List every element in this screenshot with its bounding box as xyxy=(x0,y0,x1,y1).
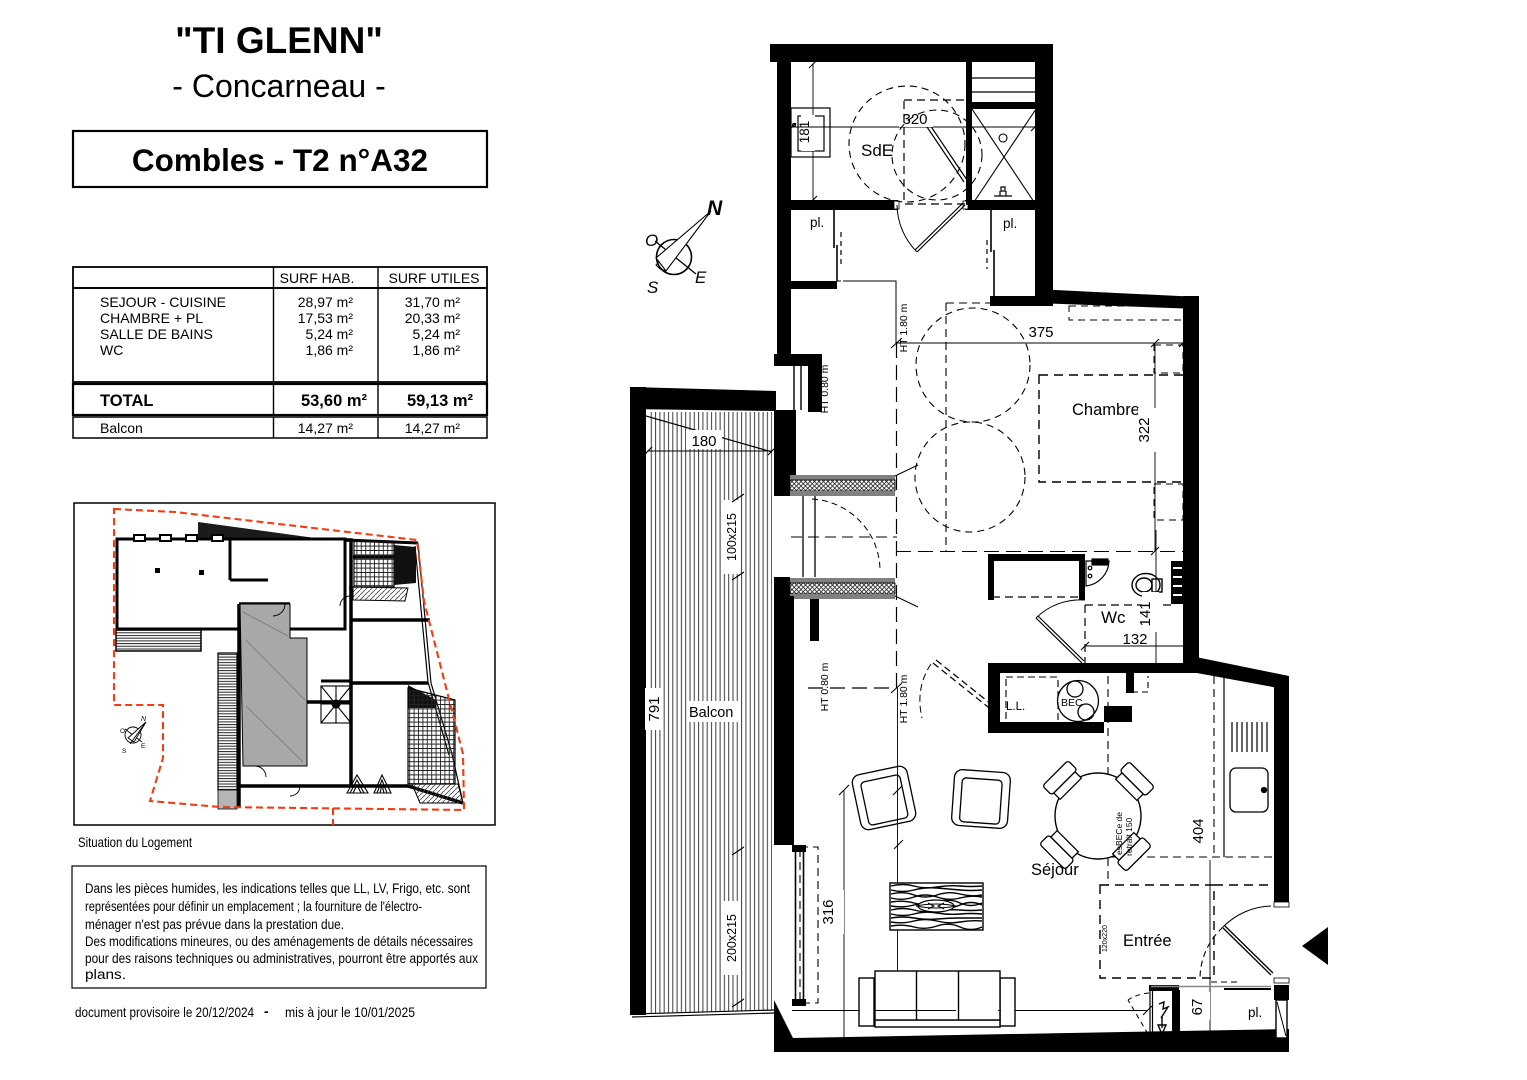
svg-text:"TI GLENN": "TI GLENN" xyxy=(175,20,383,61)
svg-text:TOTAL: TOTAL xyxy=(100,392,153,410)
svg-text:O: O xyxy=(120,728,125,735)
svg-text:SALLE DE BAINS: SALLE DE BAINS xyxy=(100,326,213,342)
svg-text:Wc: Wc xyxy=(1101,608,1126,627)
svg-text:Balcon: Balcon xyxy=(689,705,733,721)
svg-text:322: 322 xyxy=(1136,417,1153,442)
svg-text:HT 1.80 m: HT 1.80 m xyxy=(898,303,910,352)
svg-text:Dans les pièces humides, les i: Dans les pièces humides, les indications… xyxy=(85,881,470,897)
svg-text:WC: WC xyxy=(100,342,123,358)
svg-text:esBECe de: esBECe de xyxy=(1114,812,1124,855)
svg-text:404: 404 xyxy=(1190,818,1207,843)
svg-text:Chambre: Chambre xyxy=(1072,401,1140,419)
svg-text:HT 1.80 m: HT 1.80 m xyxy=(898,674,910,723)
svg-text:BEC: BEC xyxy=(1061,697,1083,709)
svg-text:HT 0.80 m: HT 0.80 m xyxy=(819,662,831,711)
svg-text:S: S xyxy=(122,748,127,755)
svg-text:Balcon: Balcon xyxy=(100,420,143,436)
svg-text:N: N xyxy=(141,716,147,723)
svg-text:SURF UTILES: SURF UTILES xyxy=(388,270,479,286)
svg-text:pour des raisons techniques ou: pour des raisons techniques ou administr… xyxy=(85,951,478,967)
svg-text:1,86 m²: 1,86 m² xyxy=(306,342,354,358)
svg-text:retrait 150: retrait 150 xyxy=(1124,817,1134,856)
svg-text:ménager n'est pas prévue dans: ménager n'est pas prévue dans la prestat… xyxy=(85,917,344,933)
svg-text:- Concarneau -: - Concarneau - xyxy=(172,68,385,104)
svg-text:141: 141 xyxy=(1137,601,1154,626)
svg-text:791: 791 xyxy=(646,696,663,721)
svg-text:20,33 m²: 20,33 m² xyxy=(405,310,461,326)
svg-text:représentées pour définir un e: représentées pour définir un emplacement… xyxy=(85,899,422,915)
svg-text:132: 132 xyxy=(1122,631,1147,648)
svg-text:120x220: 120x220 xyxy=(1102,925,1109,952)
svg-text:HT 0.80 m: HT 0.80 m xyxy=(819,364,831,413)
svg-text:181: 181 xyxy=(797,121,812,144)
svg-text:O: O xyxy=(645,231,658,250)
svg-text:E: E xyxy=(141,743,146,750)
svg-text:L.L.: L.L. xyxy=(1006,701,1025,713)
svg-text:-: - xyxy=(264,1004,269,1019)
svg-text:14,27 m²: 14,27 m² xyxy=(405,420,461,436)
svg-text:53,60 m²: 53,60 m² xyxy=(301,392,368,410)
svg-text:Des modifications mineures, ou: Des modifications mineures, ou des aména… xyxy=(85,934,473,950)
svg-text:E: E xyxy=(695,268,707,287)
svg-text:316: 316 xyxy=(820,899,837,924)
svg-text:Séjour: Séjour xyxy=(1031,861,1079,879)
svg-text:320: 320 xyxy=(902,111,927,128)
svg-text:17,53 m²: 17,53 m² xyxy=(298,310,354,326)
svg-text:plans.: plans. xyxy=(85,967,126,983)
svg-text:mis à jour le 10/01/2025: mis à jour le 10/01/2025 xyxy=(285,1005,415,1020)
svg-text:pl.: pl. xyxy=(810,215,824,230)
svg-text:59,13 m²: 59,13 m² xyxy=(407,392,474,410)
svg-text:SURF HAB.: SURF HAB. xyxy=(280,270,355,286)
svg-text:5,24 m²: 5,24 m² xyxy=(413,326,461,342)
svg-text:100x215: 100x215 xyxy=(725,513,739,561)
svg-text:N: N xyxy=(707,197,723,220)
svg-text:Situation du Logement: Situation du Logement xyxy=(78,835,192,850)
svg-text:1,86 m²: 1,86 m² xyxy=(413,342,461,358)
svg-text:14,27 m²: 14,27 m² xyxy=(298,420,354,436)
svg-text:5,24 m²: 5,24 m² xyxy=(306,326,354,342)
svg-text:28,97 m²: 28,97 m² xyxy=(298,294,354,310)
svg-text:document provisoire le 20/12/2: document provisoire le 20/12/2024 xyxy=(75,1005,254,1020)
svg-text:67: 67 xyxy=(1189,999,1206,1016)
svg-text:SEJOUR - CUISINE: SEJOUR - CUISINE xyxy=(100,294,226,310)
svg-text:375: 375 xyxy=(1028,324,1053,341)
svg-text:Entrée: Entrée xyxy=(1123,932,1172,950)
svg-text:31,70 m²: 31,70 m² xyxy=(405,294,461,310)
svg-text:pl.: pl. xyxy=(1003,216,1017,231)
svg-text:Combles - T2 n°A32: Combles - T2 n°A32 xyxy=(132,142,428,178)
svg-text:CHAMBRE + PL: CHAMBRE + PL xyxy=(100,310,203,326)
svg-text:SdE: SdE xyxy=(861,141,893,160)
svg-text:pl.: pl. xyxy=(1248,1005,1262,1020)
svg-text:S: S xyxy=(647,278,659,297)
svg-text:180: 180 xyxy=(691,433,716,450)
svg-text:200x215: 200x215 xyxy=(725,914,739,962)
